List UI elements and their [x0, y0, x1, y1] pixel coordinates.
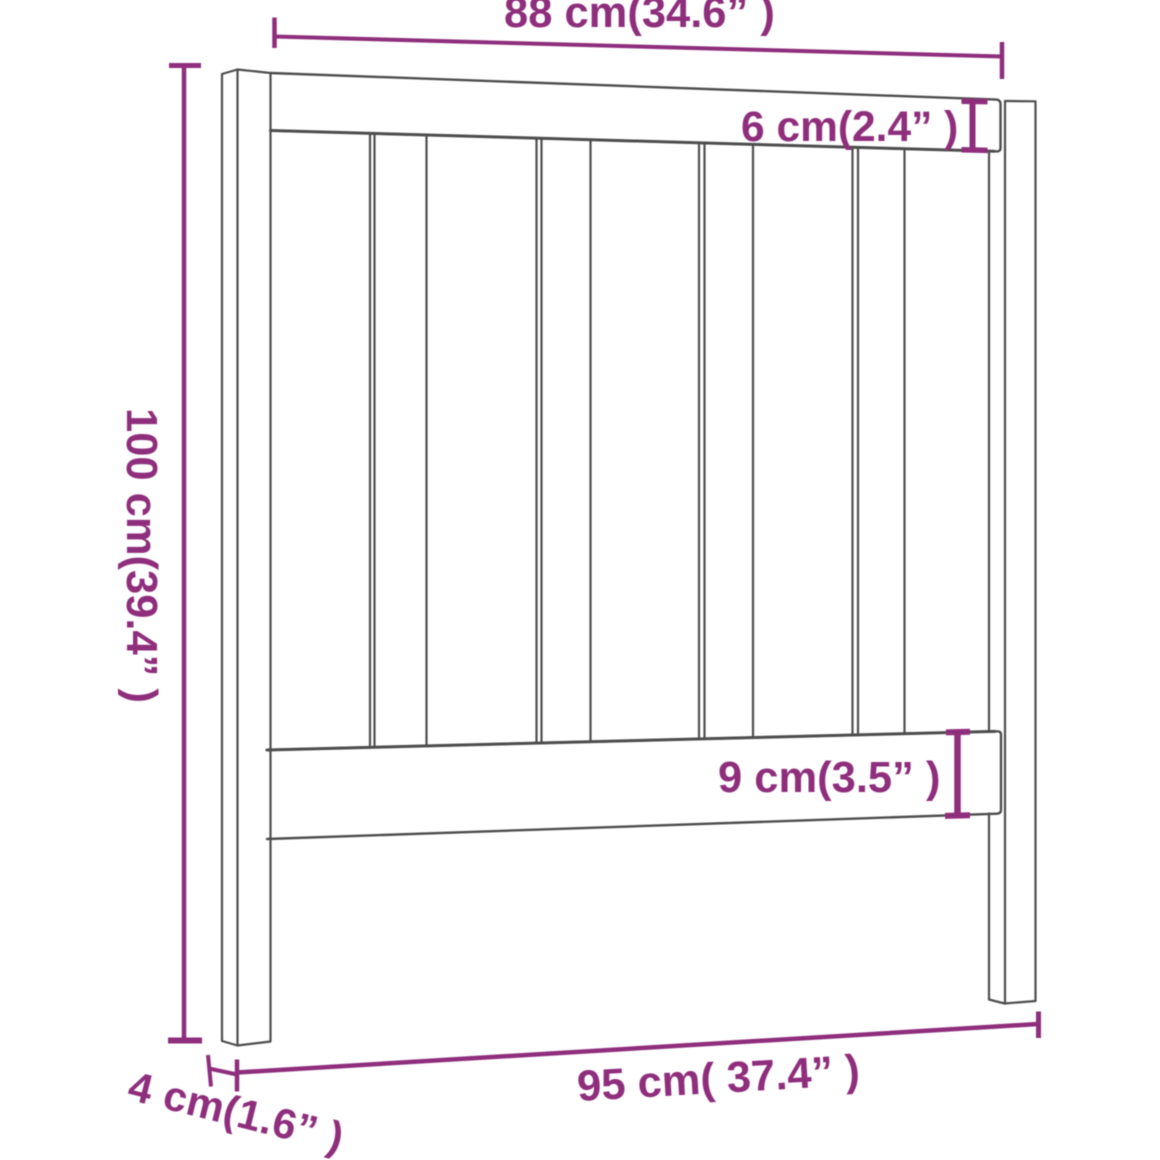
svg-text:6 cm(2.4” ): 6 cm(2.4” ) [741, 104, 958, 151]
svg-text:9 cm(3.5” ): 9 cm(3.5” ) [718, 754, 940, 802]
svg-text:100 cm(39.4” ): 100 cm(39.4” ) [117, 408, 165, 703]
svg-text:95 cm( 37.4” ): 95 cm( 37.4” ) [576, 1047, 861, 1111]
svg-text:88 cm(34.6” ): 88 cm(34.6” ) [504, 0, 775, 37]
